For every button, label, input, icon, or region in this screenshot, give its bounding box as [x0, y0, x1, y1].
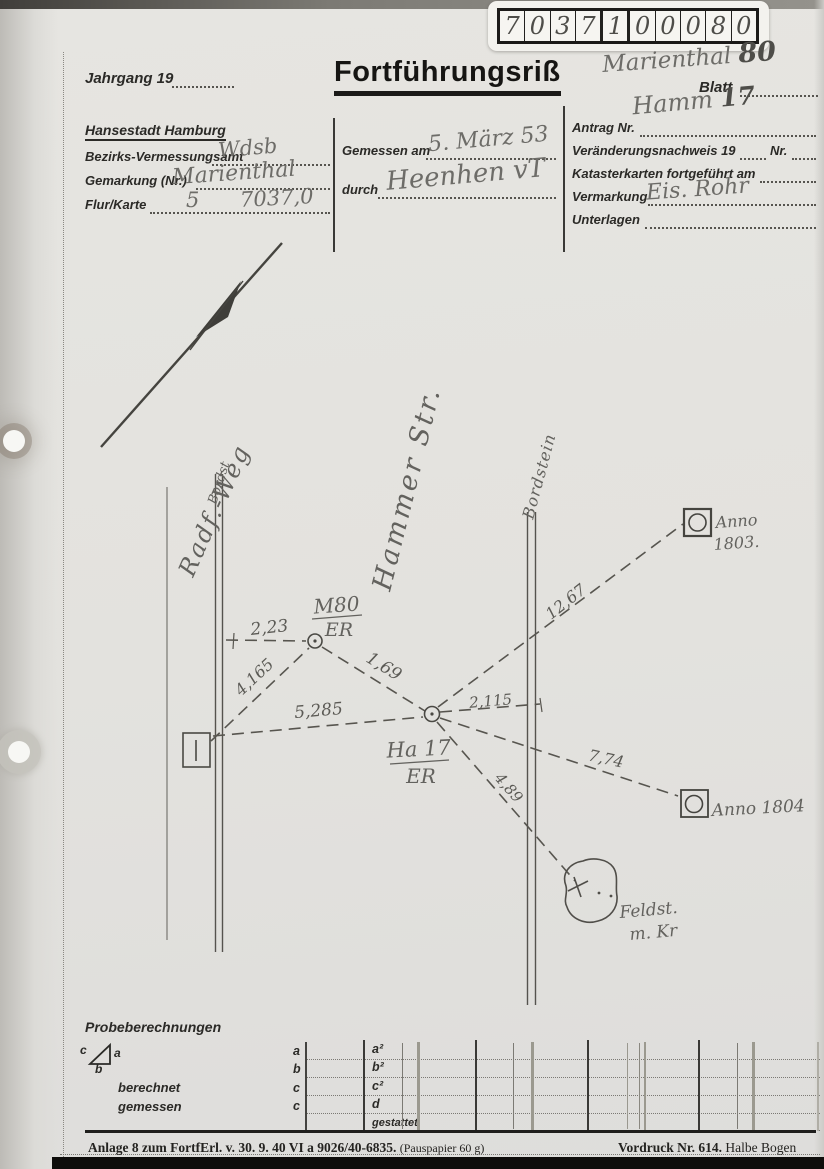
probe-value-b2: b²: [372, 1060, 384, 1074]
probe-col-line: [587, 1040, 589, 1131]
probe-col-line: [417, 1042, 420, 1131]
probe-col-line: [639, 1043, 640, 1129]
probe-row-line: [306, 1113, 820, 1114]
feldstein-label: Feldst. m. Kr: [618, 898, 679, 945]
probe-letter-c2: c: [293, 1099, 300, 1113]
m80-type: ER: [324, 619, 353, 641]
corner-stone-symbol: [183, 733, 210, 767]
point-ha17-symbol: [425, 707, 440, 722]
probe-value-a2: a²: [372, 1042, 383, 1056]
probe-col-line: [305, 1042, 307, 1132]
footer-right-main: Vordruck Nr. 614.: [618, 1140, 722, 1155]
measurement-lines: [211, 524, 683, 881]
probe-col-line: [402, 1043, 403, 1129]
point-label-m80: M80 ER: [312, 591, 362, 641]
measurement-4-89: 4,89: [490, 768, 526, 806]
ha17-type: ER: [405, 764, 436, 788]
scanned-survey-document: 7 0 3 7 1 0 0 0 8 0 Jahrgang 19 Fortführ…: [0, 0, 824, 1169]
north-arrow-icon: [101, 243, 282, 447]
probe-value-gestattet: gestattet: [372, 1117, 418, 1129]
triangle-label-b: b: [95, 1062, 102, 1074]
probe-row-line: [306, 1077, 820, 1078]
probe-value-c2: c²: [372, 1079, 383, 1093]
footer-left: Anlage 8 zum FortfErl. v. 30. 9. 40 VI a…: [88, 1140, 484, 1156]
measurement-2-23: 2,23: [249, 616, 290, 640]
probe-col-line: [363, 1040, 365, 1131]
point-label-ha17: Ha 17 ER: [385, 735, 452, 788]
probe-col-line: [752, 1042, 755, 1131]
street-label-hammer-str: Hammer Str.: [366, 383, 447, 594]
probe-triangle-icon: c a b: [78, 1040, 123, 1074]
probe-col-line: [475, 1040, 477, 1131]
probe-col-line: [644, 1042, 646, 1131]
probe-bottom-rule: [85, 1130, 816, 1133]
anno1804-label: Anno 1804: [709, 796, 805, 821]
probe-col-line: [531, 1042, 534, 1131]
measurement-5-285: 5,285: [293, 699, 343, 723]
probe-value-d: d: [372, 1097, 380, 1111]
anno1804-symbol: [681, 790, 708, 817]
triangle-label-c: c: [80, 1043, 87, 1057]
probe-col-line: [737, 1043, 738, 1129]
footer-left-note: (Pauspapier 60 g): [400, 1141, 485, 1155]
anno1803-line1: Anno: [713, 510, 758, 532]
probe-col-line: [817, 1042, 819, 1131]
probe-letter-b: b: [293, 1062, 301, 1076]
measurement-12-67: 12,67: [542, 580, 590, 624]
point-label-anno1803: Anno 1803.: [713, 510, 760, 554]
point-m80-symbol: [308, 634, 322, 648]
m80-name: M80: [312, 591, 361, 618]
measurement-2-115: 2,115: [467, 690, 512, 712]
measurement-4-165: 4,165: [230, 654, 277, 700]
street-label-bordstein: Bordstein: [518, 431, 559, 522]
triangle-label-a: a: [114, 1046, 121, 1060]
berechnet-label: berechnet: [118, 1080, 180, 1095]
probe-letter-a: a: [293, 1044, 300, 1058]
probe-col-line: [627, 1043, 628, 1129]
measurement-1-69: 1,69: [362, 648, 405, 685]
footer-left-main: Anlage 8 zum FortfErl. v. 30. 9. 40 VI a…: [88, 1140, 396, 1155]
probe-row-line: [306, 1059, 820, 1060]
feldstein-symbol: [565, 859, 617, 922]
footer-right: Vordruck Nr. 614. Halbe Bogen: [618, 1140, 796, 1156]
probe-col-line: [513, 1043, 514, 1129]
gemessen-label: gemessen: [118, 1099, 182, 1114]
street-lines: [167, 474, 536, 1005]
probe-row-line: [306, 1095, 820, 1096]
feldstein-line2: m. Kr: [629, 921, 679, 945]
feldstein-line1: Feldst.: [618, 898, 679, 923]
ha17-name: Ha 17: [385, 735, 452, 762]
street-label-radf-weg: Radf.-Weg: [172, 440, 255, 581]
survey-sketch: Radf.-Weg Bordst Hammer Str. Bordstein: [0, 0, 824, 1169]
probe-col-line: [698, 1040, 700, 1131]
anno1803-line2: 1803.: [713, 532, 760, 554]
footer-right-note: Halbe Bogen: [725, 1140, 796, 1155]
probe-title: Probeberechnungen: [85, 1019, 221, 1035]
probe-letter-c1: c: [293, 1081, 300, 1095]
anno1803-symbol: [684, 509, 711, 536]
